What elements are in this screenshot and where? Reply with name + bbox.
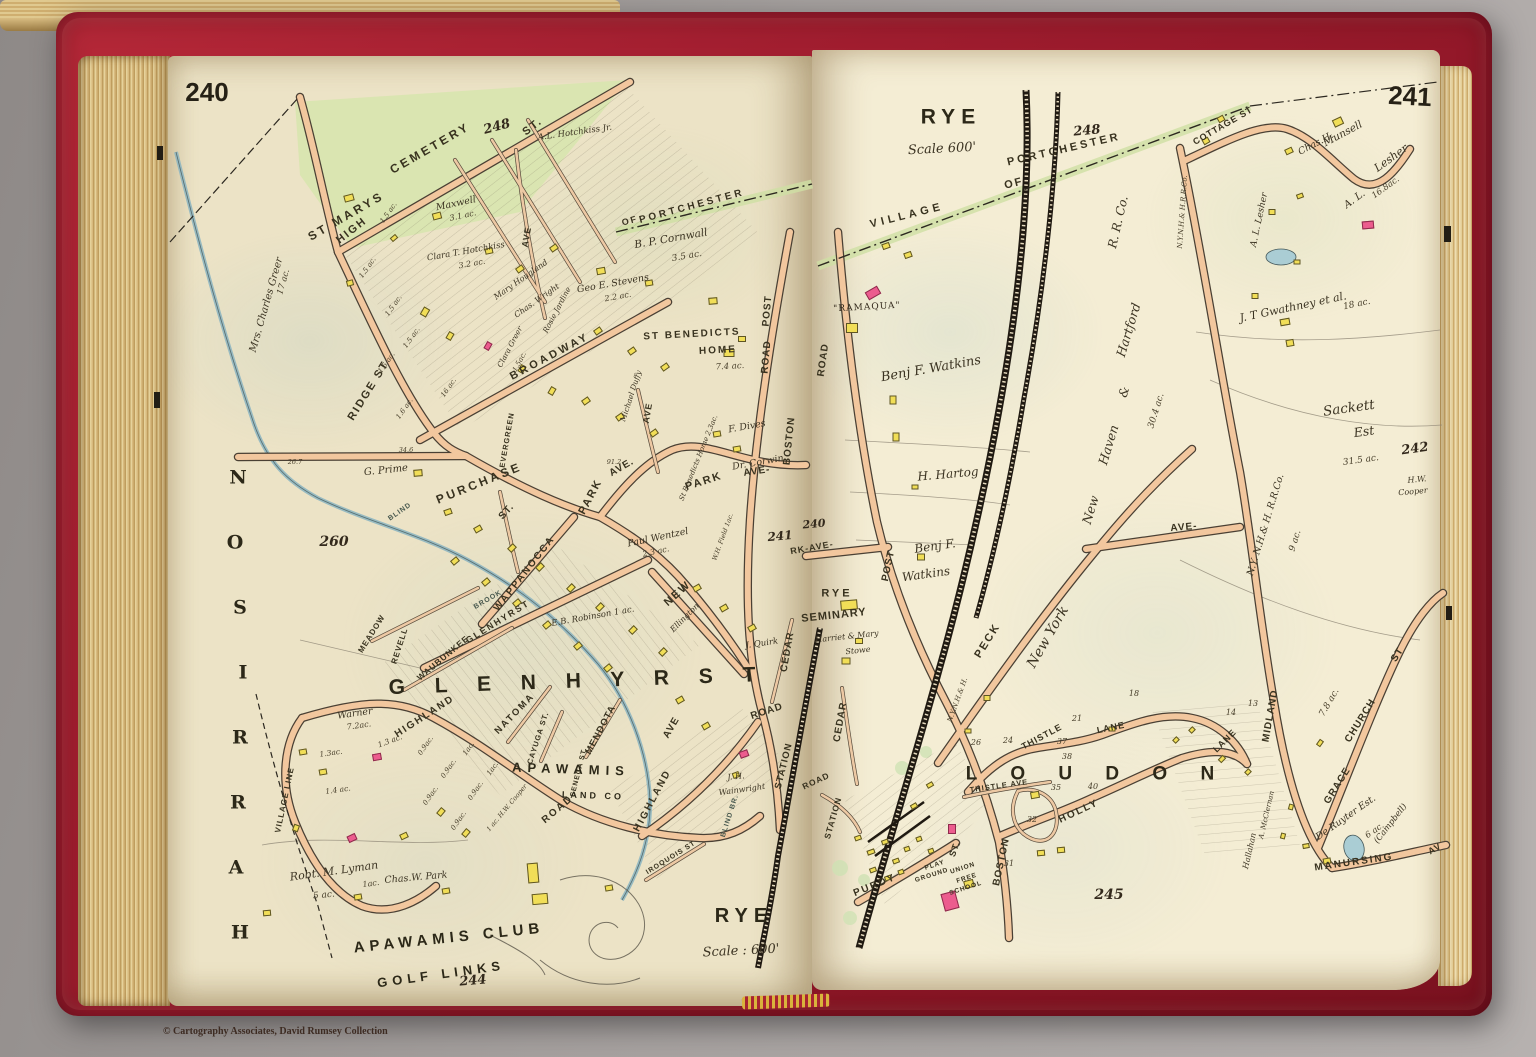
map-label: 37 [1057,738,1067,746]
map-label: RYE [715,906,773,926]
building-yellow [413,469,423,477]
map-label: R [230,794,246,813]
edge-mark [1444,226,1451,242]
map-label: 260 [319,535,348,549]
edge-mark [157,146,163,160]
map-label: 241 [767,529,793,543]
map-label: H [231,924,249,943]
map-label: 21 [1072,715,1082,723]
map-label: 18 [1129,690,1139,698]
map-label: Scale 600' [908,141,977,158]
map-linework [0,0,1536,1057]
building-yellow [527,863,540,884]
map-label: RYE [921,107,981,128]
map-label: O [227,534,244,553]
map-label: 7.4 ac. [715,362,744,372]
building-yellow [846,323,858,333]
map-label: A [229,859,244,878]
map-label: 240 [802,518,826,531]
map-label: 35 [1051,784,1061,792]
map-label: 32 [1027,816,1037,824]
building-pink [1362,220,1375,229]
building-yellow [1269,209,1276,215]
map-label: 34.6 [399,447,413,454]
building-yellow [1252,293,1259,299]
map-label: 5 ac. [313,891,336,902]
copyright-watermark: © Cartography Associates, David Rumsey C… [163,1026,388,1037]
map-label: 26 [971,739,981,747]
map-label: 26.7 [288,459,302,466]
map-label: R [232,729,248,748]
edge-mark [1446,606,1452,620]
building-pink [948,824,956,834]
building-yellow [1037,850,1045,857]
building-yellow [912,485,919,490]
map-label: 14 [1226,709,1236,717]
map-label: J. H. [727,772,745,781]
map-label: 244 [459,973,487,988]
building-yellow [965,729,972,734]
map-label: 40 [1088,783,1098,791]
map-label: 13 [1248,700,1258,708]
building-yellow [842,658,851,665]
map-label: HOME [699,345,737,357]
building-yellow [263,910,271,917]
edge-mark [154,392,160,408]
map-label: APAWAMIS [512,760,630,777]
map-label: Est [1353,424,1375,439]
atlas-photo: ST MARYSCEMETERY248HIGHST.A.L. Hotchkiss… [0,0,1536,1057]
building-yellow [708,297,718,305]
building-yellow [1285,339,1294,347]
building-yellow [890,396,897,405]
map-label: 24 [1003,737,1013,745]
map-label: 38 [1062,753,1072,761]
building-yellow [532,893,549,905]
building-yellow [984,695,991,701]
page-number-left: 240 [185,79,228,105]
map-label: 31 [1004,860,1014,868]
map-label: 242 [1401,441,1430,458]
building-yellow [1057,847,1065,854]
map-label: N [229,469,246,488]
map-label: S [233,599,247,618]
map-label: Scale : 600' [702,942,779,959]
page-number-right: 241 [1388,82,1433,110]
map-label: 245 [1094,888,1123,902]
map-label: RYE [821,589,852,600]
building-yellow [893,433,900,442]
map-label: H.W. [1407,475,1427,485]
map-label: L O U D O N [966,765,1228,784]
building-yellow [1294,260,1301,265]
map-label: 91.2 [607,459,621,466]
map-label: I [239,664,248,683]
